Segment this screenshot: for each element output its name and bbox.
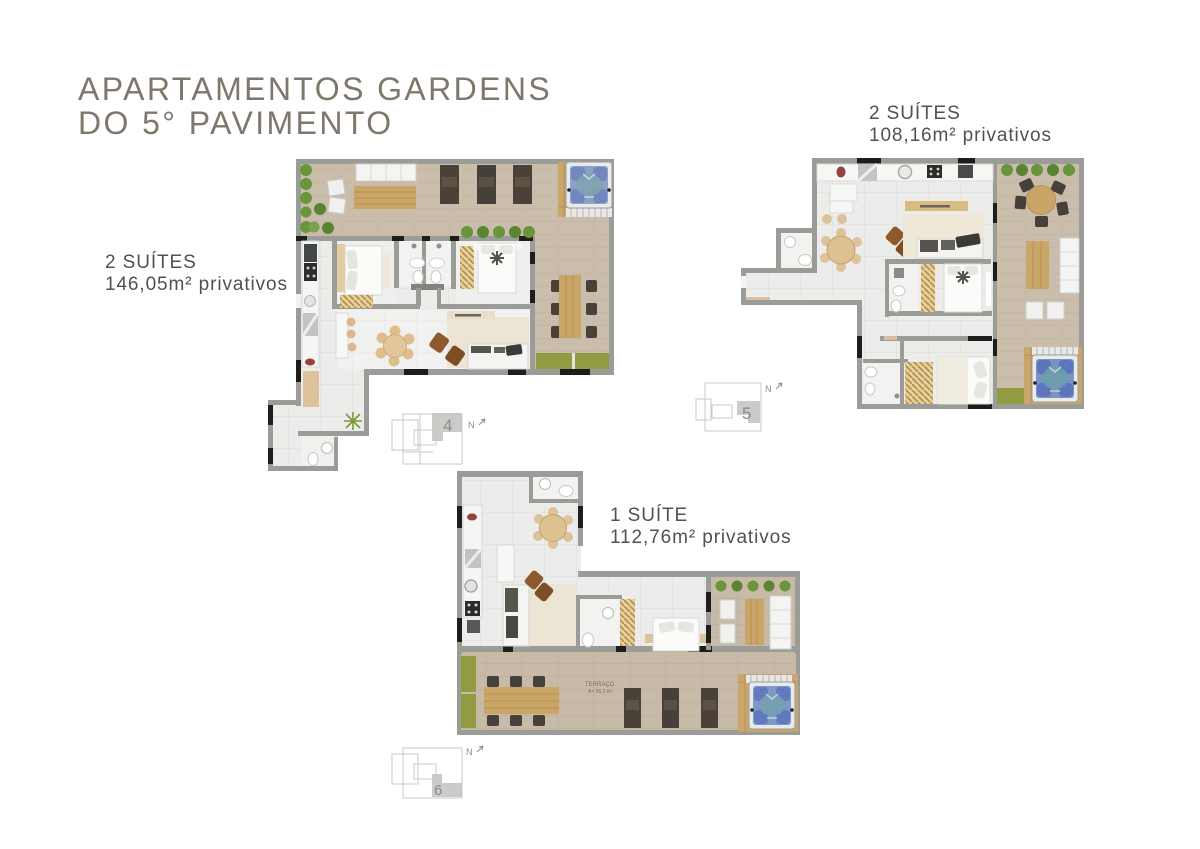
svg-text:DO 5° PAVIMENTO: DO 5° PAVIMENTO — [78, 105, 394, 141]
svg-text:A= 56,2 m²: A= 56,2 m² — [588, 689, 613, 695]
svg-text:4: 4 — [443, 416, 452, 435]
svg-text:APARTAMENTOS GARDENS: APARTAMENTOS GARDENS — [78, 71, 552, 107]
svg-text:1 SUÍTE: 1 SUÍTE — [610, 505, 688, 526]
svg-text:N: N — [466, 747, 473, 757]
svg-text:N: N — [468, 420, 475, 430]
svg-text:112,76m² privativos: 112,76m² privativos — [610, 527, 792, 548]
svg-text:108,16m² privativos: 108,16m² privativos — [869, 125, 1052, 146]
svg-text:5: 5 — [742, 404, 751, 423]
svg-text:146,05m² privativos: 146,05m² privativos — [105, 274, 288, 295]
svg-text:TERRAÇO: TERRAÇO — [585, 682, 615, 688]
svg-text:6: 6 — [434, 782, 442, 799]
svg-text:N: N — [765, 384, 772, 394]
svg-text:2 SUÍTES: 2 SUÍTES — [869, 103, 961, 124]
svg-text:2 SUÍTES: 2 SUÍTES — [105, 252, 197, 273]
